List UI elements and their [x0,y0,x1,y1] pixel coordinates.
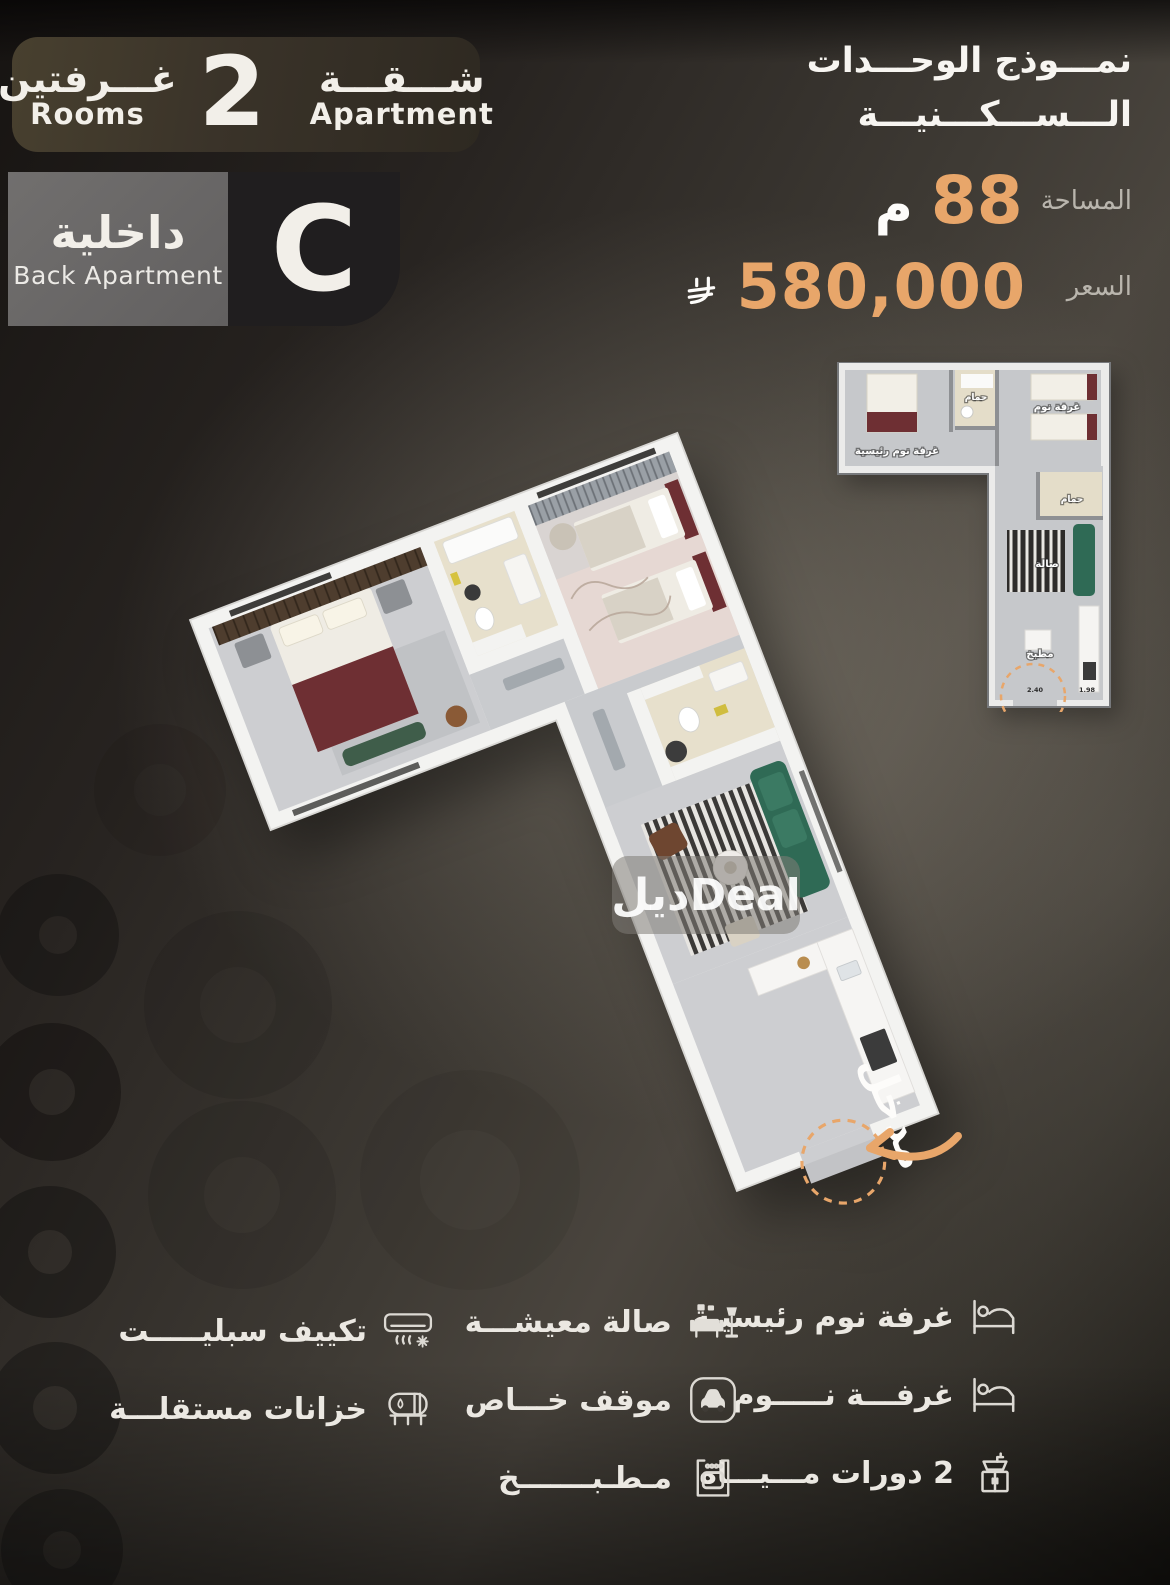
area-unit: م [875,180,913,232]
car-icon [688,1375,738,1425]
feature-label: موقف خـــاص [465,1383,672,1418]
watermark-badge: ديلDeal [612,856,800,934]
sink-icon [970,1448,1020,1498]
living-room-icon [688,1297,738,1347]
bed-icon [970,1292,1020,1342]
rooms-label-en: Rooms [30,100,145,129]
rooms-badge: شـــقـــة Apartment 2 غـــرفتين Rooms [12,37,480,152]
feature-water-tanks: خزانات مستقلـــة [109,1370,433,1448]
page-title-line1: نمـــوذج الوحـــدات [807,34,1132,88]
page-title: نمـــوذج الوحـــدات الـــســـكـــنيـــة [807,34,1132,143]
feature-split-ac: تكييف سبليـــــت [109,1292,433,1370]
mini-label-master-bedroom: غرفة نوم رئيسية [855,446,939,457]
page-title-line2: الـــســـكـــنيـــة [807,88,1132,142]
watermark-text: ديلDeal [611,870,801,921]
feature-label: تكييف سبليـــــت [118,1314,367,1349]
mini-label-bath2: حمام [1061,495,1084,505]
bed-icon [970,1370,1020,1420]
features-column-utilities: تكييف سبليـــــت خزانات مستقلـــة [109,1292,433,1448]
rooms-label-ar: غـــرفتين [0,60,177,98]
rooms-label-group: غـــرفتين Rooms [0,60,177,129]
saudi-riyal-symbol-icon [685,275,719,311]
unit-letter: C [271,190,358,308]
feature-parking: موقف خـــاص [465,1361,738,1439]
features-column-living: صالة معيشـــة موقف خـــاص مـطـبـــــــ [465,1283,738,1517]
mini-floor-plan: غرفة نوم رئيسية حمام غرفة نوم حمام صالة … [835,362,1120,712]
feature-bathrooms: 2 دورات مـــيـــاه [692,1434,1020,1512]
area-value: 88 [931,168,1023,234]
unit-letter-box: C [228,172,400,326]
apartment-label-ar: شـــقـــة [319,60,485,98]
rooms-count: 2 [199,49,266,135]
mini-dim-side: 1.98 [1079,686,1096,694]
area-label: المساحة [1041,186,1132,216]
feature-label: صالة معيشـــة [465,1305,672,1340]
mini-label-bath1: حمام [965,393,988,403]
apartment-label-en: Apartment [310,100,494,129]
unit-type-en: Back Apartment [13,263,222,289]
water-tank-icon [383,1384,433,1434]
unit-type-box: داخلية Back Apartment [8,172,228,326]
price-value: 580,000 [737,256,1026,318]
entrance-arrow-icon [818,1088,978,1178]
unit-type-ar: داخلية [51,209,186,256]
feature-bedroom: غرفـــة نـــــوم [692,1356,1020,1434]
specs-block: المساحة 88 م السعر 580,000 [685,168,1132,318]
oven-icon [688,1453,738,1503]
price-row: السعر 580,000 [685,256,1132,318]
feature-living-room: صالة معيشـــة [465,1283,738,1361]
mini-label-bedroom: غرفة نوم [1034,402,1081,413]
mini-label-kitchen: مطبخ [1026,649,1053,660]
price-label: السعر [1044,272,1132,302]
feature-label: خزانات مستقلـــة [109,1392,367,1427]
feature-label: مـطـبـــــــخ [498,1461,672,1496]
mini-floor-plan-render: غرفة نوم رئيسية حمام غرفة نوم حمام صالة … [835,362,1120,712]
brochure-page: شـــقـــة Apartment 2 غـــرفتين Rooms دا… [0,0,1170,1585]
apartment-label-group: شـــقـــة Apartment [310,60,494,129]
mini-dim-entrance: 2.40 [1027,686,1044,694]
feature-master-bedroom: غرفة نوم رئيسيـة [692,1278,1020,1356]
ac-split-icon [383,1306,433,1356]
feature-label: غرفـــة نـــــوم [732,1378,954,1413]
mini-label-living: صالة [1035,559,1058,570]
feature-kitchen: مـطـبـــــــخ [465,1439,738,1517]
features-column-rooms: غرفة نوم رئيسيـة غرفـــة نـــــوم [692,1278,1020,1512]
area-row: المساحة 88 م [685,168,1132,234]
